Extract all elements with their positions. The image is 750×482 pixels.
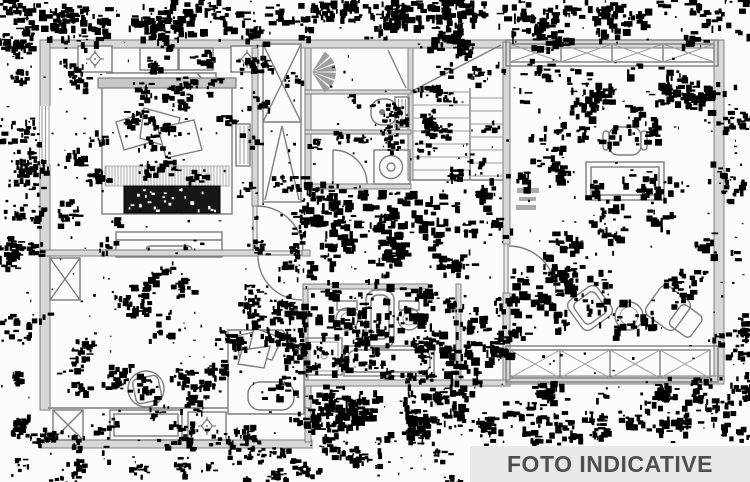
foto-indicative-banner: FOTO INDICATIVE	[470, 446, 750, 482]
left-wall-window	[40, 106, 52, 164]
floor-plan-drawing	[0, 0, 750, 482]
wc-door-arc	[333, 150, 367, 184]
banner-label: FOTO INDICATIVE	[507, 451, 713, 478]
office-door	[504, 244, 508, 293]
blanket	[124, 186, 220, 213]
wc-room	[305, 48, 413, 189]
left-window-x-box	[50, 258, 80, 300]
staircase	[412, 45, 503, 180]
radiator	[236, 124, 250, 166]
floorplan-photo: FOTO INDICATIVE	[0, 0, 750, 482]
